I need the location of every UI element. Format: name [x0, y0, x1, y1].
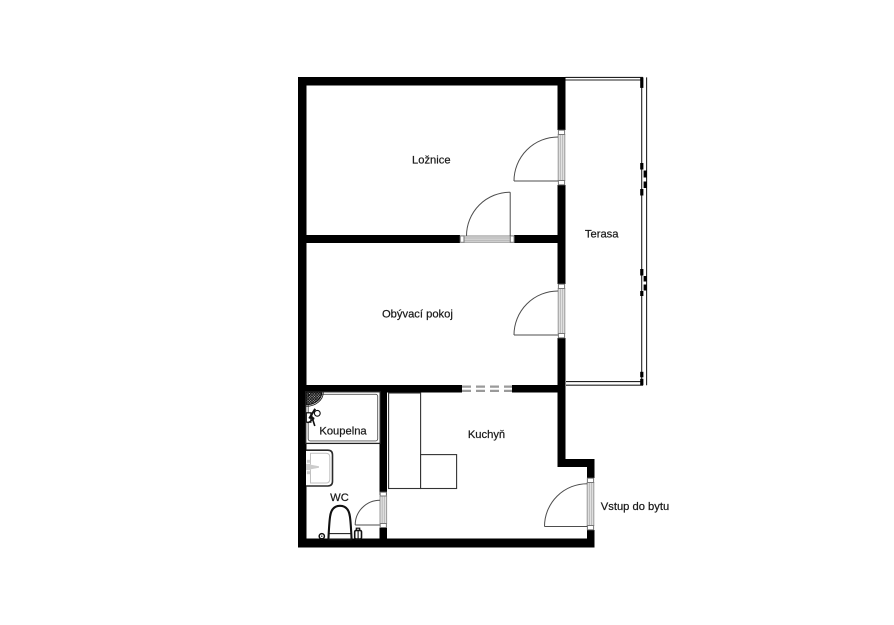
svg-text:Koupelna: Koupelna [319, 425, 367, 437]
svg-text:Terasa: Terasa [585, 228, 619, 240]
svg-text:Kuchyň: Kuchyň [468, 429, 505, 441]
svg-text:Vstup do bytu: Vstup do bytu [601, 501, 669, 513]
svg-text:Ložnice: Ložnice [412, 155, 451, 167]
svg-text:WC: WC [330, 492, 349, 504]
svg-text:Obývací pokoj: Obývací pokoj [382, 308, 453, 320]
